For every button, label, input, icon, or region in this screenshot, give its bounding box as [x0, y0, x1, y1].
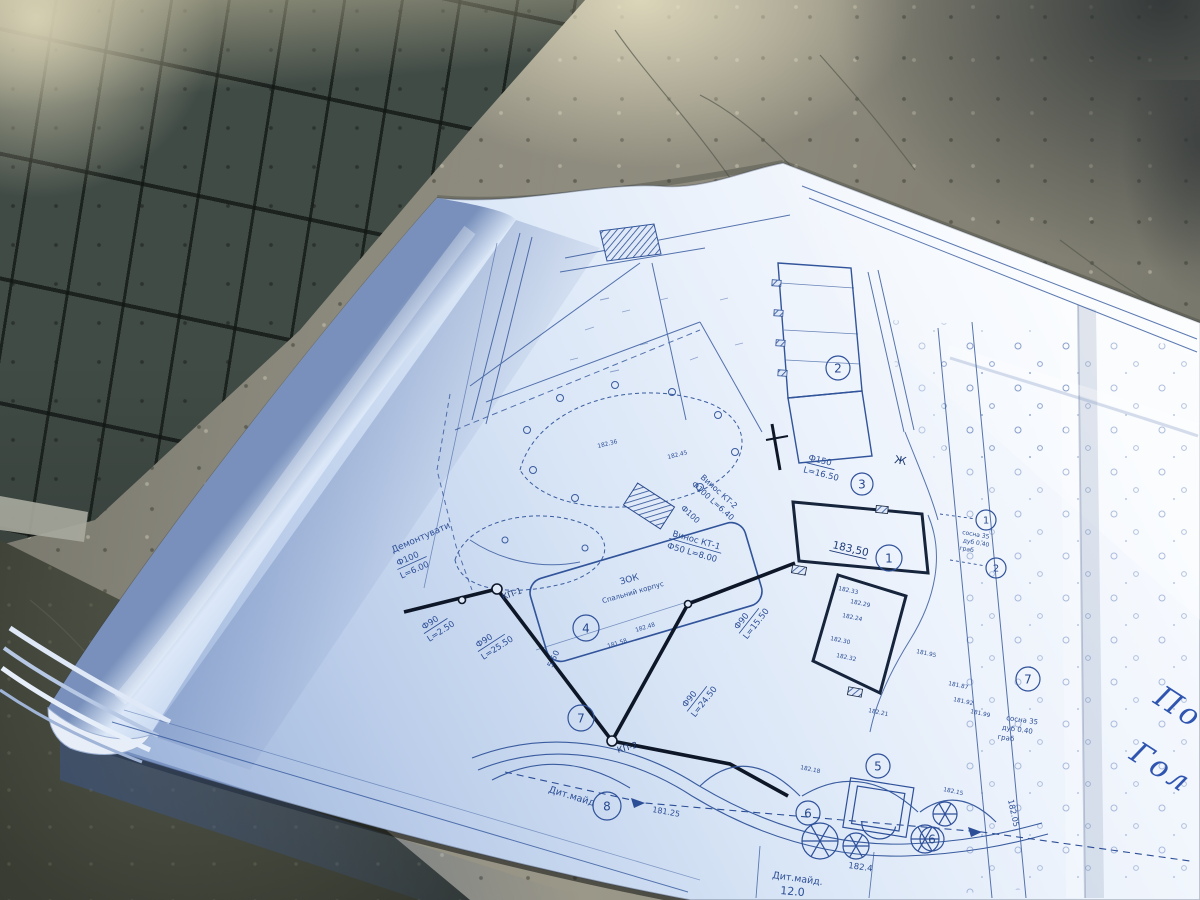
label-dim12: 12.0	[780, 884, 806, 899]
callout-2: 2	[834, 361, 842, 375]
callout-2b: 2	[993, 564, 999, 575]
callout-8: 8	[603, 799, 611, 813]
scene-overlay: 1 2 3 4 5 6 6 7 7 8 1 2 Демонтувати Ф100…	[0, 0, 1200, 900]
building-small-top	[600, 224, 661, 261]
callout-7b: 7	[1024, 672, 1032, 686]
callout-1b: 1	[983, 516, 989, 527]
callout-4: 4	[582, 621, 590, 635]
callout-5: 5	[874, 759, 882, 773]
callout-6b: 6	[928, 832, 936, 846]
callout-6a: 6	[804, 806, 812, 820]
callout-1: 1	[885, 551, 893, 565]
callout-3: 3	[858, 477, 866, 491]
callout-7a: 7	[577, 711, 585, 725]
curb-strip	[0, 496, 88, 542]
label-well-zh: Ж	[893, 453, 907, 468]
photo-blueprint-on-pavement: 1 2 3 4 5 6 6 7 7 8 1 2 Демонтувати Ф100…	[0, 0, 1200, 900]
